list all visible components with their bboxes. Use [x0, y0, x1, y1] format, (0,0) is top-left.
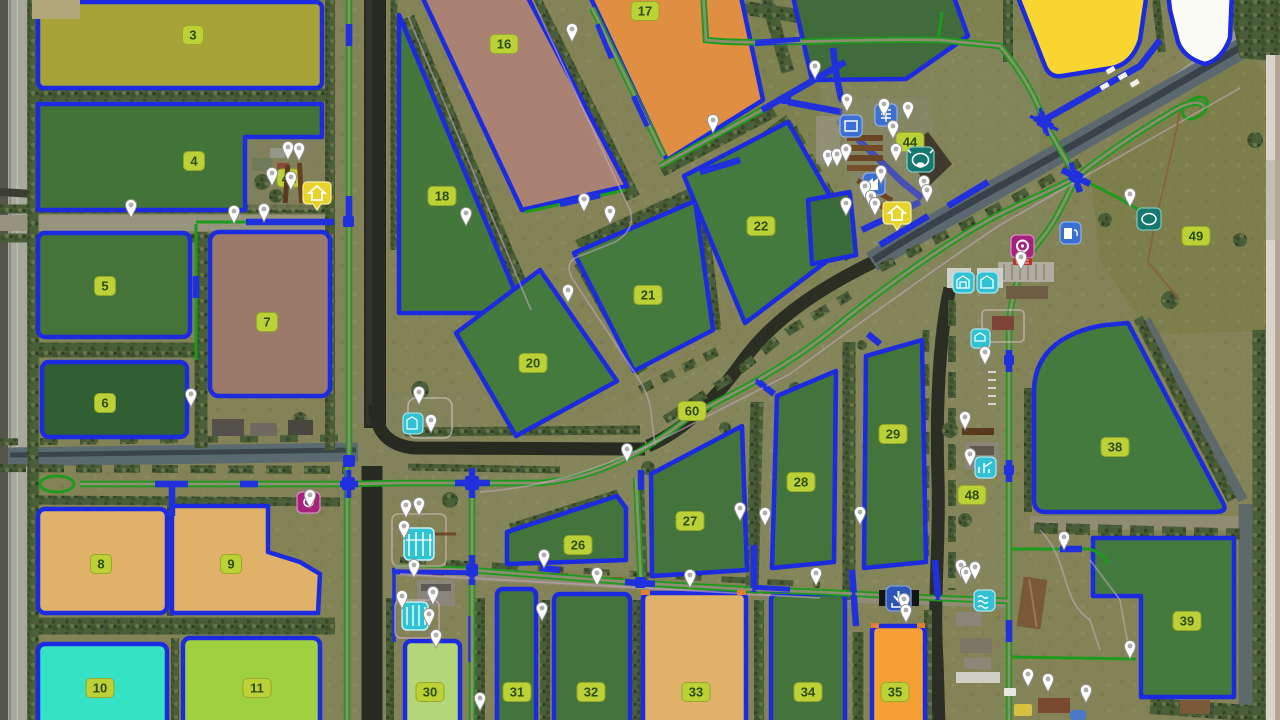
svg-text:6: 6 [101, 396, 108, 411]
svg-text:20: 20 [526, 356, 540, 371]
svg-text:48: 48 [965, 488, 979, 503]
svg-text:35: 35 [888, 685, 902, 700]
svg-text:21: 21 [641, 288, 655, 303]
svg-text:39: 39 [1180, 614, 1194, 629]
svg-text:11: 11 [250, 681, 264, 696]
svg-text:38: 38 [1108, 440, 1122, 455]
svg-text:8: 8 [97, 557, 104, 572]
svg-text:34: 34 [801, 685, 816, 700]
svg-text:22: 22 [754, 219, 768, 234]
svg-text:32: 32 [584, 685, 598, 700]
svg-text:16: 16 [497, 37, 511, 52]
svg-text:31: 31 [510, 685, 524, 700]
svg-text:18: 18 [435, 189, 449, 204]
svg-text:3: 3 [189, 28, 196, 43]
svg-text:30: 30 [423, 685, 437, 700]
svg-text:49: 49 [1189, 229, 1203, 244]
svg-text:60: 60 [685, 404, 699, 419]
svg-text:33: 33 [689, 685, 703, 700]
svg-text:26: 26 [571, 538, 585, 553]
svg-text:7: 7 [263, 315, 270, 330]
svg-text:10: 10 [93, 681, 107, 696]
svg-text:28: 28 [794, 475, 808, 490]
svg-text:27: 27 [683, 514, 697, 529]
svg-text:17: 17 [638, 4, 652, 19]
svg-text:5: 5 [101, 279, 108, 294]
svg-text:9: 9 [227, 557, 234, 572]
svg-text:29: 29 [886, 427, 900, 442]
svg-text:4: 4 [190, 154, 198, 169]
